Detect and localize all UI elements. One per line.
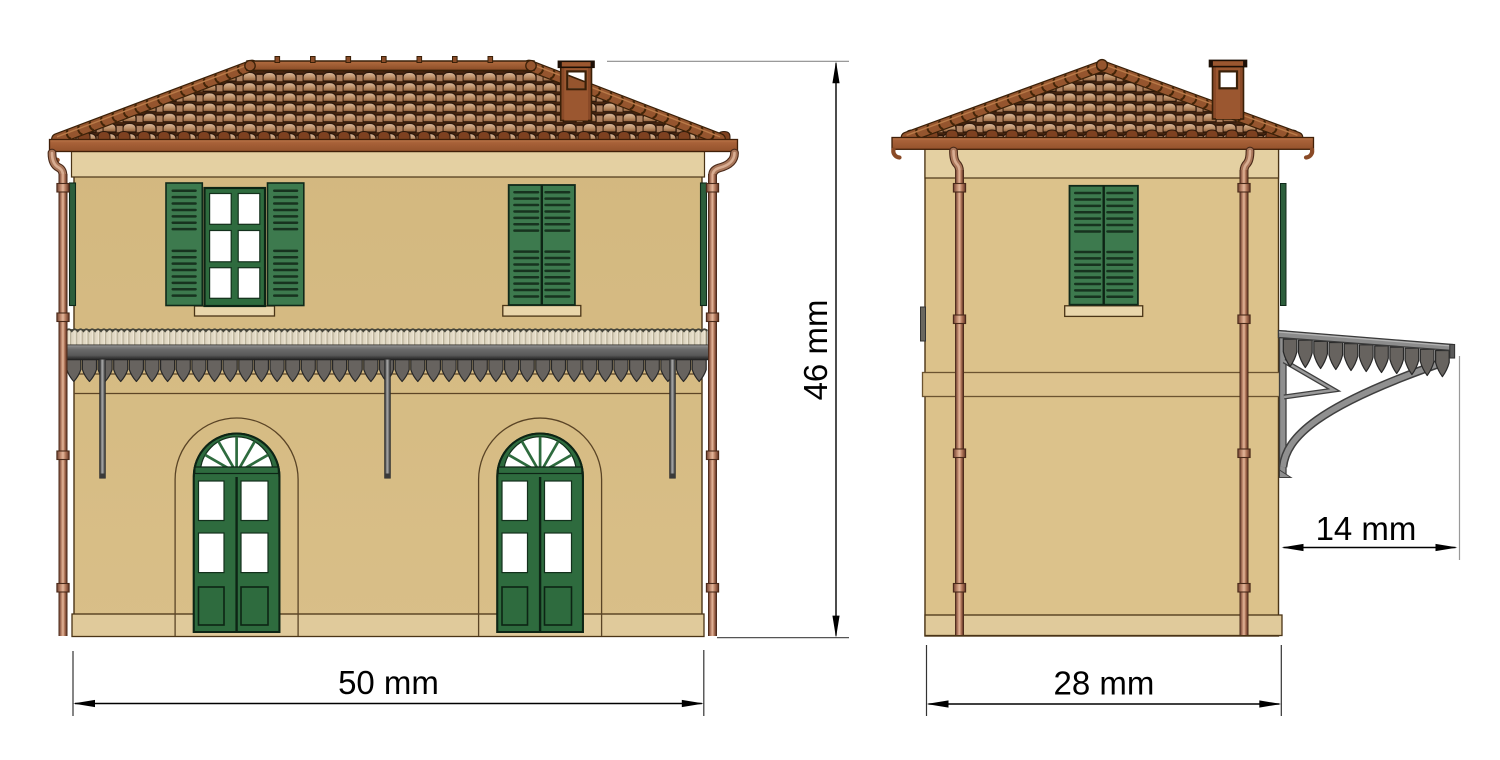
svg-text:28 mm: 28 mm <box>1053 665 1154 702</box>
svg-text:50 mm: 50 mm <box>338 664 439 701</box>
svg-text:14 mm: 14 mm <box>1316 510 1417 547</box>
svg-text:46 mm: 46 mm <box>797 300 834 401</box>
